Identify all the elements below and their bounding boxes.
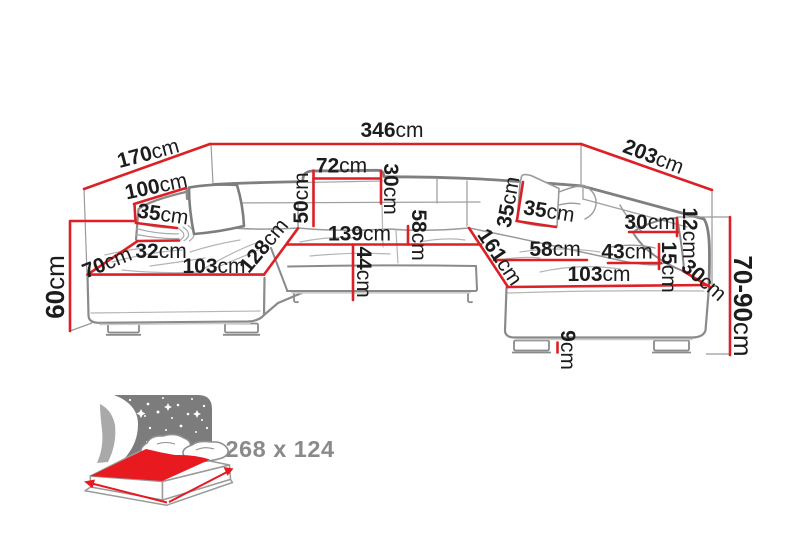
svg-text:43cm: 43cm bbox=[601, 241, 652, 264]
svg-text:268 x 124: 268 x 124 bbox=[225, 436, 334, 462]
svg-text:9cm: 9cm bbox=[556, 330, 579, 370]
svg-text:70cm: 70cm bbox=[79, 243, 135, 284]
svg-text:12cm: 12cm bbox=[678, 207, 701, 258]
svg-text:103cm: 103cm bbox=[567, 263, 630, 286]
svg-text:58cm: 58cm bbox=[407, 209, 430, 260]
svg-text:30cm: 30cm bbox=[624, 211, 675, 234]
svg-text:50cm: 50cm bbox=[290, 172, 313, 223]
svg-text:60cm: 60cm bbox=[40, 255, 70, 319]
svg-text:30cm: 30cm bbox=[379, 163, 402, 214]
svg-text:346cm: 346cm bbox=[360, 119, 423, 142]
svg-text:32cm: 32cm bbox=[135, 240, 186, 263]
svg-text:139cm: 139cm bbox=[328, 223, 391, 246]
svg-text:44cm: 44cm bbox=[352, 246, 375, 297]
svg-text:203cm: 203cm bbox=[620, 135, 687, 179]
svg-text:15cm: 15cm bbox=[657, 241, 680, 292]
svg-text:103cm: 103cm bbox=[182, 255, 245, 278]
svg-text:30cm: 30cm bbox=[677, 255, 731, 306]
svg-text:58cm: 58cm bbox=[529, 238, 580, 261]
svg-text:70-90cm: 70-90cm bbox=[728, 255, 758, 356]
svg-text:72cm: 72cm bbox=[316, 155, 367, 178]
